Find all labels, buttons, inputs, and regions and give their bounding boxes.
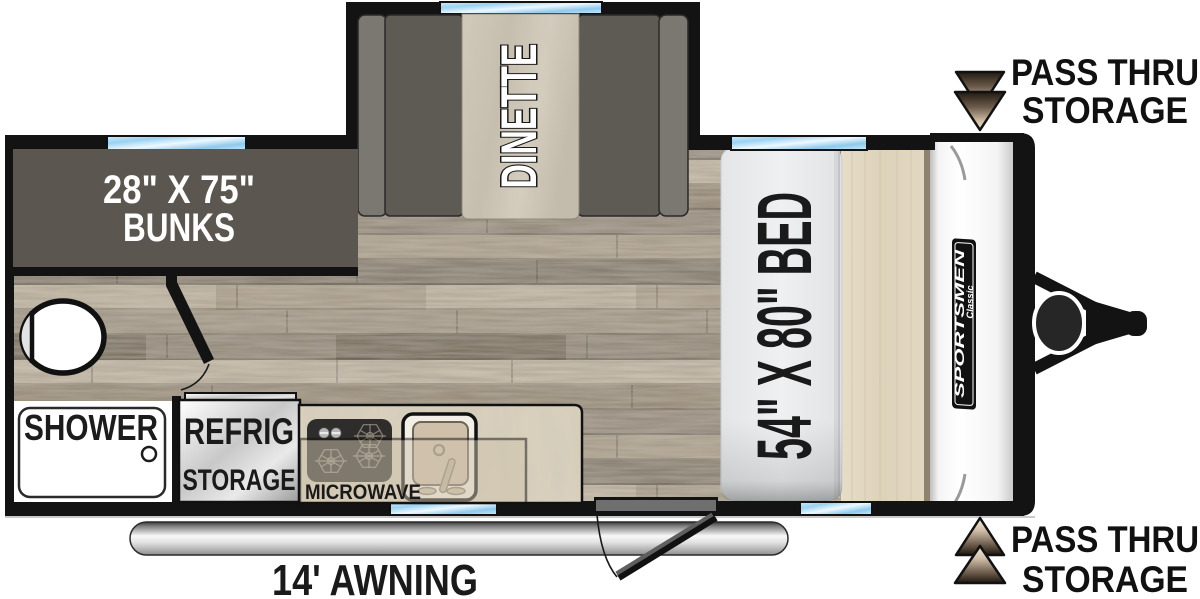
svg-text:MICROWAVE: MICROWAVE — [305, 481, 421, 504]
svg-text:PASS THRU: PASS THRU — [1011, 52, 1199, 93]
svg-text:STORAGE: STORAGE — [1022, 559, 1188, 599]
svg-text:Classic: Classic — [965, 285, 976, 319]
svg-text:14' AWNING: 14' AWNING — [272, 556, 478, 599]
svg-text:STORAGE: STORAGE — [1022, 90, 1188, 131]
svg-text:54" X 80" BED: 54" X 80" BED — [742, 192, 828, 460]
svg-text:DINETTE: DINETTE — [491, 44, 547, 189]
svg-text:REFRIG: REFRIG — [184, 411, 294, 452]
svg-text:SHOWER: SHOWER — [24, 407, 158, 448]
svg-text:SPORTSMEN: SPORTSMEN — [952, 249, 967, 398]
svg-text:BUNKS: BUNKS — [123, 206, 235, 250]
svg-text:PASS THRU: PASS THRU — [1011, 519, 1199, 560]
svg-text:STORAGE: STORAGE — [183, 464, 296, 497]
